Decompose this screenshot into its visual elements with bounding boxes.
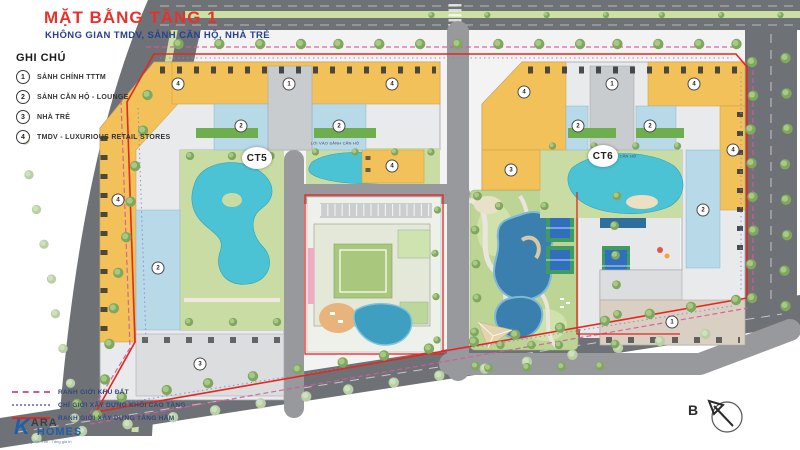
zone-badge: 3 <box>194 358 207 371</box>
block-label-ct5: CT5 <box>242 147 272 169</box>
page-title: MẶT BẰNG TẦNG 1 <box>44 8 304 28</box>
zone-badge: 4 <box>172 78 185 91</box>
entry-label-ct5: LỐI VÀO SẢNH CĂN HỘ <box>311 141 360 146</box>
zone-badge: 4 <box>518 86 531 99</box>
legend-item: 1 SẢNH CHÍNH TTTM <box>16 70 170 84</box>
central-parcel <box>305 195 443 354</box>
legend-number-badge: 1 <box>16 70 30 84</box>
legend-line-item: CHỈ GIỚI XÂY DỰNG KHỐI CAO TẦNG <box>12 401 186 409</box>
purple-dotted-line-swatch <box>12 404 50 406</box>
zone-badge: 4 <box>727 144 740 157</box>
zone-badge: 2 <box>697 204 710 217</box>
zone-badge: 2 <box>152 262 165 275</box>
legend-line-item: RANH GIỚI KHU ĐẤT <box>12 388 186 396</box>
legend-item: 2 SẢNH CĂN HỘ - LOUNGE <box>16 90 170 104</box>
zone-badge: 2 <box>644 120 657 133</box>
site-plan-slide: { "header": { "title": "MẶT BẰNG TẦNG 1"… <box>0 0 800 450</box>
legend-item: 4 TMDV - LUXURIOUS RETAIL STORES <box>16 130 170 144</box>
zone-badge: 4 <box>386 78 399 91</box>
zone-badge: 2 <box>235 120 248 133</box>
zone-badge: 1 <box>606 78 619 91</box>
legend-item: 3 NHÀ TRẺ <box>16 110 170 124</box>
logo-tagline: Xây niềm tin - Tăng giá trị <box>26 440 82 444</box>
block-label-ct6: CT6 <box>588 145 618 167</box>
legend-number-badge: 4 <box>16 130 30 144</box>
zone-badge: 1 <box>283 78 296 91</box>
kara-homes-logo: K ARA HOMES Xây niềm tin - Tăng giá trị <box>14 416 82 444</box>
zone-badge: 1 <box>666 316 679 329</box>
legend-notes: GHI CHÚ 1 SẢNH CHÍNH TTTM 2 SẢNH CĂN HỘ … <box>16 52 170 150</box>
zone-badge: 2 <box>572 120 585 133</box>
zone-badge: 4 <box>386 160 399 173</box>
legend-number-badge: 3 <box>16 110 30 124</box>
zone-badge: 2 <box>333 120 346 133</box>
logo-k-icon: K <box>14 416 30 438</box>
pink-dashed-line-swatch <box>12 391 50 393</box>
zone-badge: 4 <box>112 194 125 207</box>
zone-badge: 4 <box>688 78 701 91</box>
compass: B <box>688 394 758 444</box>
page-subtitle: KHÔNG GIAN TMDV, SẢNH CĂN HỘ, NHÀ TRẺ <box>45 30 445 41</box>
north-label: B <box>688 402 698 418</box>
legend-number-badge: 2 <box>16 90 30 104</box>
zone-badge: 3 <box>505 164 518 177</box>
legend-heading: GHI CHÚ <box>16 52 170 64</box>
